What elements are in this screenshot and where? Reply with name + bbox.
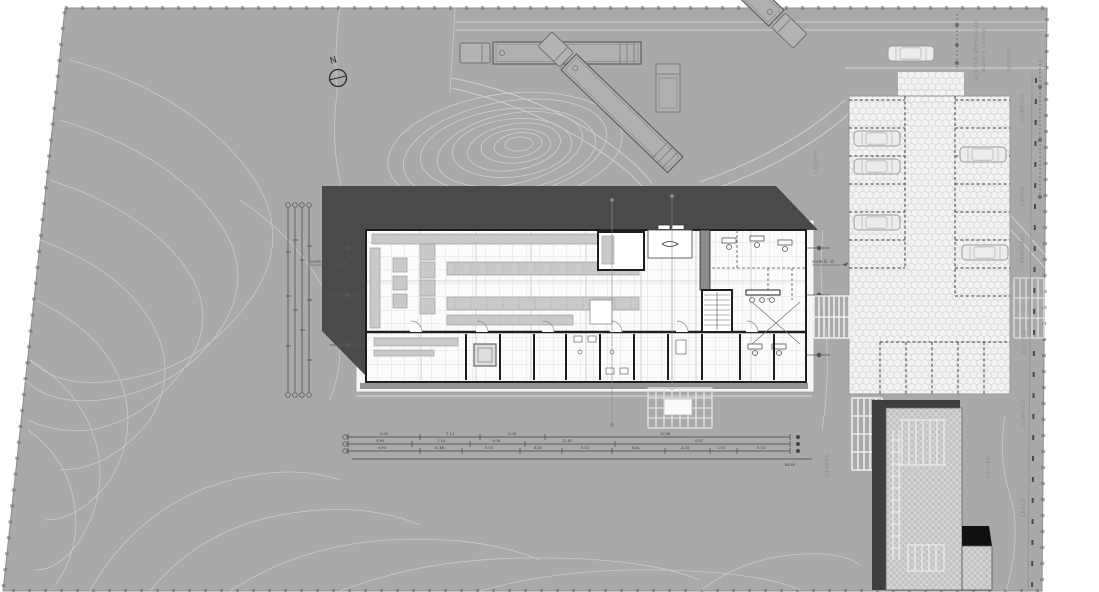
dim-value: 3.08 — [508, 432, 517, 436]
patio-table — [664, 399, 692, 415]
label-cesped-mid: CÉSPED — [823, 453, 831, 476]
dim-value: 10.06 — [660, 432, 671, 436]
main-building — [322, 186, 818, 396]
site-plan-page: N — [0, 0, 1099, 592]
section-label: corte B - B — [310, 259, 332, 264]
paver-crossing — [898, 72, 964, 98]
dim-value: 10.66 — [434, 446, 445, 450]
label-acceso-vehicular-sub: autos y cargas — [981, 27, 987, 72]
label-olimpico-mid: OLÍMPICO — [1020, 399, 1027, 428]
machine-unit — [474, 344, 496, 366]
annex-canopy — [962, 526, 992, 546]
core-wall — [700, 230, 710, 290]
label-olimpico-top: OLÍMPICO — [1019, 93, 1026, 122]
dim-value: 8.81 — [632, 446, 640, 450]
label-cesped-top: CÉSPED — [812, 150, 820, 173]
dim-value: 5.90 — [380, 432, 389, 436]
label-cerco-top: CERCO — [1020, 186, 1026, 206]
label-porton: PORTÓN — [1006, 48, 1013, 72]
box-truck-icon — [656, 64, 680, 112]
dim-value: 8.85 — [534, 446, 542, 450]
dim-value: 5.70 — [757, 446, 766, 450]
dim-value: 5.90 — [376, 439, 385, 443]
annex-extension — [962, 546, 992, 590]
reception-counter — [746, 290, 780, 295]
label-acceso: ACCESO — [1022, 330, 1028, 354]
dim-value: 7.14 — [446, 432, 455, 436]
dim-value: 7.14 — [437, 439, 446, 443]
section-label: corte B - B — [812, 259, 834, 264]
label-cesped-right: CÉSPED — [984, 455, 992, 478]
cold-room — [598, 232, 644, 270]
dim-value: 5.02 — [581, 446, 589, 450]
car-icon — [854, 131, 900, 146]
dim-value: 12.82 — [562, 439, 572, 443]
island-fixture — [590, 300, 612, 324]
dim-value: 5.03 — [485, 446, 493, 450]
car-icon — [854, 215, 900, 230]
label-cerco-bottom: CERCO — [1021, 497, 1027, 517]
dim-value: 8.81 — [695, 439, 703, 443]
dim-value: 3.04 — [681, 446, 690, 450]
label-acceso-vehicular: ACCESO VEHICULAR — [974, 20, 980, 81]
dim-value: 5.90 — [378, 446, 387, 450]
plinth-shadow — [360, 383, 808, 389]
car-icon — [962, 245, 1008, 260]
parking-area — [849, 72, 1010, 394]
entrance-vestibule — [648, 230, 692, 258]
annex-roof — [886, 408, 962, 590]
label-peatones: PEATONES — [1020, 232, 1026, 263]
car-icon — [854, 159, 900, 174]
stairs-icon — [702, 290, 732, 332]
car-icon — [960, 147, 1006, 162]
site-plan-drawing: N — [0, 0, 1099, 592]
dim-value: 1.50 — [717, 446, 726, 450]
dim-value: 3.08 — [492, 439, 501, 443]
car-icon — [888, 46, 934, 61]
dim-total: 64.80 — [785, 463, 796, 467]
